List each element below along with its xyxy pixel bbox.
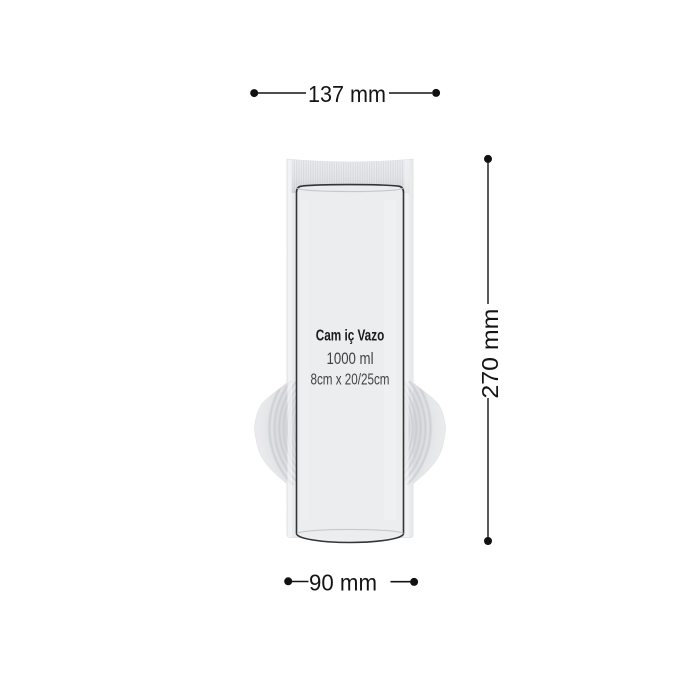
svg-text:Cam iç Vazo: Cam iç Vazo bbox=[316, 327, 385, 344]
svg-text:8cm x 20/25cm: 8cm x 20/25cm bbox=[311, 371, 390, 388]
svg-text:270 mm: 270 mm bbox=[477, 309, 503, 399]
svg-text:1000 ml: 1000 ml bbox=[327, 350, 374, 368]
svg-text:137 mm: 137 mm bbox=[308, 81, 386, 107]
svg-text:90 mm: 90 mm bbox=[309, 569, 377, 595]
